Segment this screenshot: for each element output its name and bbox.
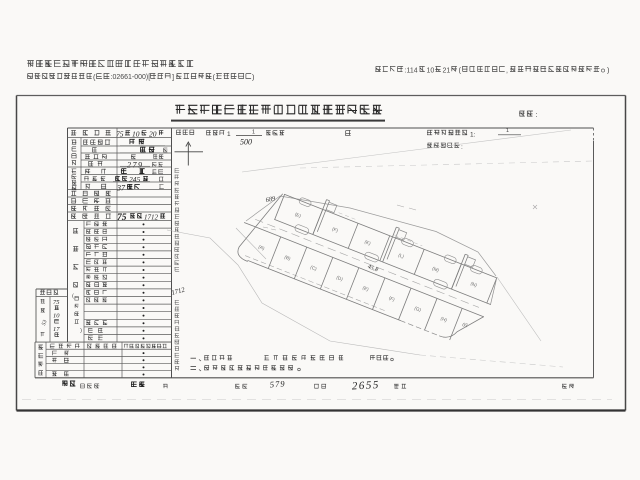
svg-text:53: 53 [41, 319, 49, 326]
svg-text:579: 579 [269, 378, 285, 389]
svg-text:1712: 1712 [144, 213, 159, 221]
svg-text:,: , [506, 67, 508, 74]
svg-text:1: 1 [227, 131, 231, 138]
svg-text:10: 10 [427, 67, 435, 74]
svg-text:(D): (D) [336, 275, 344, 282]
svg-text:(M): (M) [431, 266, 440, 273]
svg-text:245: 245 [129, 175, 141, 184]
svg-text:]: ] [172, 73, 174, 82]
svg-text:(C): (C) [310, 265, 318, 272]
svg-text:10: 10 [53, 313, 60, 320]
svg-text:(E): (E) [294, 212, 302, 219]
svg-text:(A): (A) [258, 244, 266, 251]
svg-text:(H): (H) [440, 316, 448, 323]
svg-text:(B): (B) [284, 254, 292, 261]
svg-text:(F): (F) [388, 295, 396, 302]
svg-text:75: 75 [116, 129, 124, 138]
svg-text:(K): (K) [364, 239, 372, 246]
svg-text:45.8: 45.8 [367, 263, 379, 273]
svg-text:(E): (E) [362, 285, 370, 292]
svg-text:17: 17 [53, 326, 60, 333]
svg-text:(L): (L) [398, 252, 405, 259]
svg-text::02661-000)[: :02661-000)[ [111, 74, 151, 81]
svg-text:(: ( [213, 73, 216, 82]
svg-text:1712: 1712 [171, 286, 187, 296]
svg-text:37: 37 [116, 184, 126, 193]
svg-text:2655: 2655 [352, 379, 381, 392]
svg-text::: : [461, 144, 463, 151]
svg-text:1: 1 [506, 128, 509, 134]
svg-text:10: 10 [132, 129, 140, 138]
svg-text::: : [536, 110, 538, 119]
svg-text:75: 75 [117, 213, 127, 223]
svg-text:(F): (F) [331, 226, 339, 233]
svg-text:20: 20 [149, 129, 157, 138]
svg-text:1: 1 [252, 129, 255, 135]
svg-text:75: 75 [53, 299, 60, 306]
svg-text::114: :114 [405, 67, 418, 74]
svg-text:(: ( [459, 66, 462, 75]
svg-text:21: 21 [443, 67, 451, 74]
svg-text:): ) [252, 73, 255, 82]
svg-text:500: 500 [240, 138, 252, 147]
svg-text:279: 279 [127, 161, 144, 170]
svg-text:(G): (G) [414, 306, 422, 313]
svg-text:(: ( [93, 73, 96, 82]
svg-text:(N): (N) [470, 281, 478, 288]
svg-text:): ) [607, 66, 610, 75]
svg-text:1:: 1: [470, 131, 476, 138]
